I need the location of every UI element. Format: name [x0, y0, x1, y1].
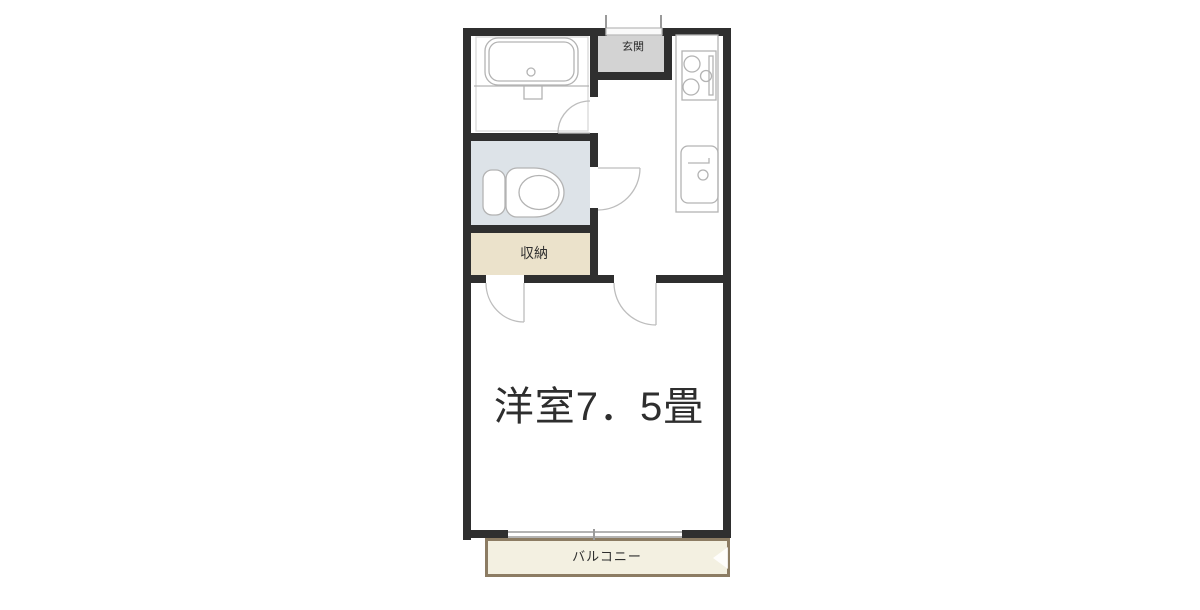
wall-entrance-bottom	[598, 72, 672, 80]
bathtub-icon	[485, 38, 578, 85]
wall-partition-lower	[590, 208, 598, 283]
wall-bottom-right-stub	[682, 530, 731, 538]
closet-door-gap	[486, 275, 524, 283]
wall-partition-upper	[590, 28, 598, 97]
entrance-label: 玄関	[622, 39, 644, 53]
wall-mainroom-top-a	[463, 275, 486, 283]
wall-left	[463, 28, 471, 540]
wall-bottom-left-stub	[463, 530, 508, 538]
wall-mainroom-top-b	[524, 275, 614, 283]
washroom-basin	[524, 86, 542, 99]
floor-plan: 玄関 収納 洋室7．5畳 バルコニー	[0, 0, 1200, 610]
storage-label: 収納	[520, 245, 548, 261]
main-room-label: 洋室7．5畳	[494, 385, 705, 429]
entry-door-gap	[614, 275, 656, 283]
front-door	[606, 28, 662, 35]
front-door-ticks	[606, 15, 661, 28]
floor-plan-canvas: 玄関 収納 洋室7．5畳 バルコニー	[0, 0, 1200, 610]
wall-bath-toilet	[463, 133, 598, 141]
balcony-label: バルコニー	[572, 549, 642, 564]
wall-toilet-storage	[463, 225, 598, 233]
toilet-door-gap	[590, 167, 598, 208]
toilet-tank-icon	[483, 170, 505, 215]
wall-top-left	[463, 28, 607, 36]
wall-mainroom-top-c	[656, 275, 731, 283]
bath-door-gap	[590, 97, 598, 133]
wall-entrance-right	[664, 28, 672, 80]
